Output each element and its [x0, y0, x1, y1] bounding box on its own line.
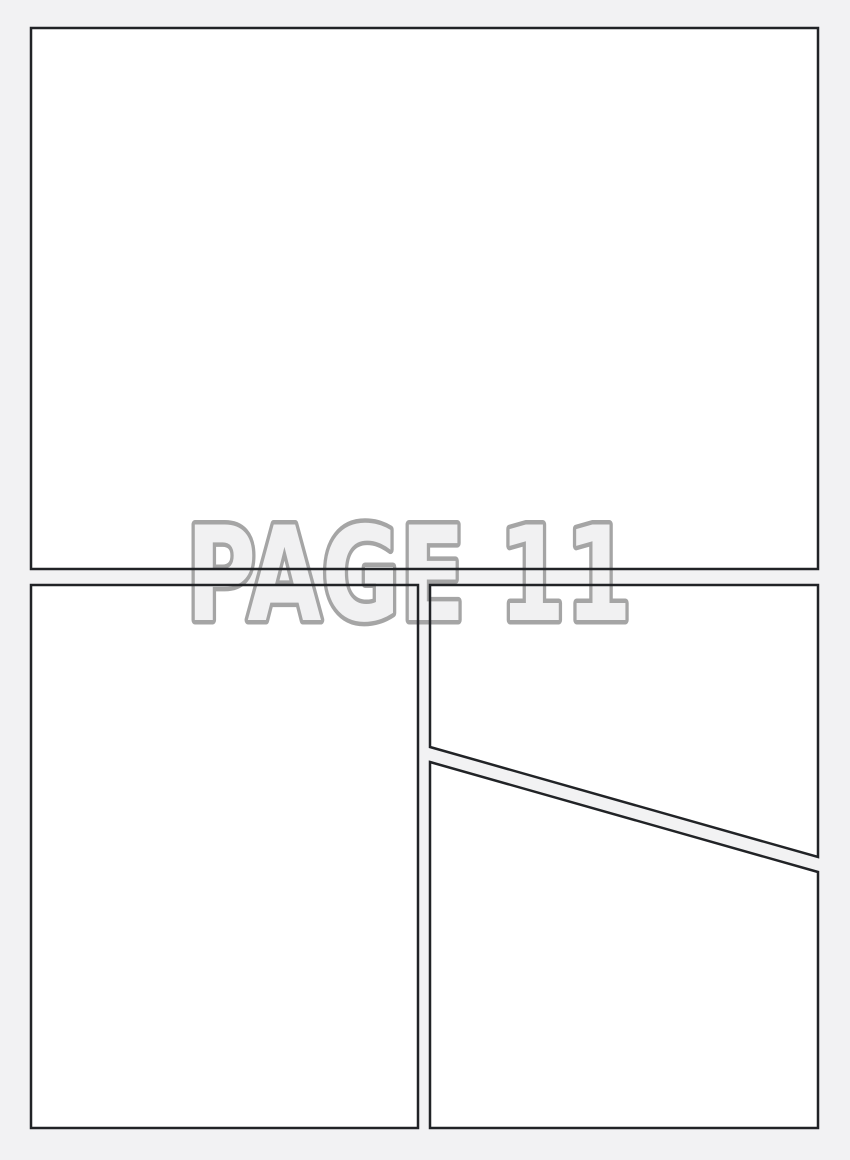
- bottom-left-panel: [31, 585, 418, 1128]
- top-panel: [31, 28, 818, 569]
- page-canvas: PAGE 11: [0, 0, 850, 1160]
- page-number-label: PAGE 11: [186, 498, 632, 651]
- comic-page-template: PAGE 11: [0, 0, 850, 1160]
